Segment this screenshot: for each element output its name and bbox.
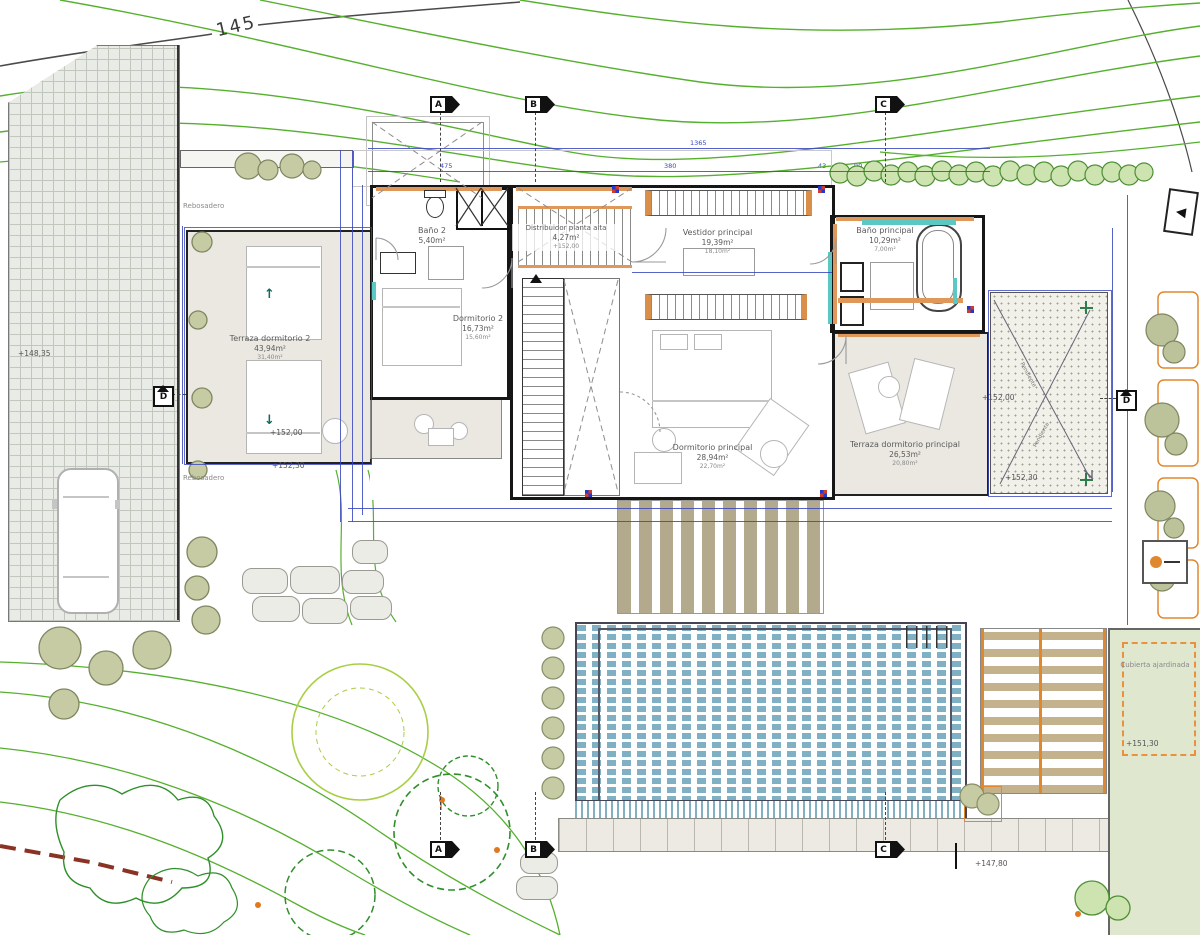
dim-line: [182, 226, 183, 464]
elevator-shaft: [456, 188, 512, 230]
room-area: 19,39m²: [670, 238, 765, 248]
rebosadero-label: Rebosadero: [183, 475, 224, 482]
pergola-beam: [1103, 629, 1106, 793]
wardrobe-north: [645, 190, 812, 216]
toilet-tank: [424, 190, 446, 198]
room-name: Vestidor principal: [670, 228, 765, 238]
dim-line: [348, 508, 1112, 509]
car-mirror-right: [115, 500, 120, 509]
room-label-dormitorio2: Dormitorio 2 16,73m² 15,60m²: [436, 314, 520, 342]
garden-wall: [180, 150, 354, 168]
room-area-util: 22,70m²: [655, 463, 770, 471]
room-label-terraza-principal: Terraza dormitorio principal 26,53m² 20,…: [840, 440, 970, 468]
dim-value: 1365: [690, 140, 707, 147]
elevation-label: +151,30: [1126, 740, 1159, 748]
stone: [302, 598, 348, 624]
room-name: Baño 2: [400, 226, 464, 236]
bed-line: [652, 400, 770, 402]
room-area-util: 31,40m²: [195, 354, 345, 362]
room-area: 4,27m²: [512, 233, 620, 243]
wood-accent: [838, 334, 980, 337]
planter-frame: [964, 786, 1002, 822]
arrow-down-icon: ↓: [264, 414, 275, 427]
car: [57, 468, 119, 614]
section-line-b: [535, 112, 536, 182]
room-area: 5,40m²: [400, 236, 464, 246]
sink: [840, 262, 864, 292]
elevation-label: +152,30: [272, 462, 305, 470]
room-label-bano-principal: Baño principal 10,29m² 7,00m²: [840, 226, 930, 254]
retaining-wall: [558, 818, 1138, 852]
garden-trees: [56, 664, 510, 935]
room-name: Baño principal: [840, 226, 930, 236]
wood-deck: [617, 500, 824, 614]
section-letter: A: [430, 841, 447, 858]
section-marker-a-bottom: A: [430, 841, 460, 858]
elevation-label: +152,00: [982, 394, 1015, 402]
stone: [242, 568, 288, 594]
room-name: Dormitorio 2: [436, 314, 520, 324]
utility-dot: [1150, 556, 1162, 568]
section-marker-c-bottom: C: [875, 841, 905, 858]
pergola: [980, 628, 1107, 794]
car-rear-window: [63, 576, 109, 578]
registry-mark: [585, 490, 592, 497]
pool-ladder: [906, 626, 952, 648]
stone: [342, 570, 384, 594]
pool-basin: [598, 628, 952, 804]
section-line-c: [885, 112, 886, 182]
pool-edge-band: [575, 800, 963, 819]
window-teal: [862, 220, 956, 225]
section-line-d: [1100, 398, 1116, 399]
wood-accent: [838, 298, 963, 303]
section-letter: D: [1123, 396, 1130, 406]
registry-mark: [820, 490, 827, 497]
washbasin: [380, 252, 416, 274]
room-label-bano2: Baño 2 5,40m²: [400, 226, 464, 246]
table: [428, 428, 454, 446]
pergola-beam: [1039, 629, 1042, 793]
section-marker-c-top: C: [875, 96, 905, 113]
room-area-util: 20,80m²: [840, 460, 970, 468]
room-area: 10,29m²: [840, 236, 930, 246]
dim-value: 90: [854, 163, 862, 170]
stone: [290, 566, 340, 594]
room-area: 16,73m²: [436, 324, 520, 334]
room-name: Terraza dormitorio 2: [195, 334, 345, 344]
stone: [252, 596, 300, 622]
pillow: [694, 334, 722, 350]
elevator-divider: [481, 188, 483, 226]
wood-accent: [833, 224, 837, 324]
utility-marker: [1142, 540, 1188, 584]
hedge-row: [830, 161, 1153, 186]
dim-line: [632, 272, 832, 273]
rebosadero-label: Rebosadero: [183, 203, 224, 210]
section-line-d: [172, 394, 186, 395]
section-marker-d-right: D: [1116, 390, 1137, 411]
room-area: 26,53m²: [840, 450, 970, 460]
cubierta-label: Cubierta ajardinada: [1116, 662, 1194, 669]
stone: [350, 596, 392, 620]
wall-tick: [955, 843, 957, 869]
contour-elevation-label: 145: [214, 12, 258, 42]
room-label-dormitorio-principal: Dormitorio principal 28,94m² 22,70m²: [655, 443, 770, 471]
elevation-label: +147,80: [975, 860, 1008, 868]
stone: [352, 540, 388, 564]
section-marker-b-top: B: [525, 96, 555, 113]
room-area-util: 15,60m²: [436, 334, 520, 342]
boundary-line: [0, 846, 172, 882]
driveway-wall: [177, 45, 179, 620]
room-elevation: +152,00: [512, 243, 620, 251]
roof-band: [352, 150, 832, 187]
section-marker-a-top: A: [430, 96, 460, 113]
window-teal: [372, 282, 376, 300]
floor-plan-sheet: ↑ ↓: [0, 0, 1200, 935]
room-label-terraza2: Terraza dormitorio 2 43,94m² 31,40m²: [195, 334, 345, 362]
room-name: Terraza dormitorio principal: [840, 440, 970, 450]
window-teal: [828, 252, 832, 324]
stair-direction-arrow: [530, 268, 542, 283]
section-letter: C: [875, 96, 892, 113]
elevation-label: +148,35: [18, 350, 51, 358]
room-name: Dormitorio principal: [655, 443, 770, 453]
room-label-distribuidor: Distribuidor planta alta 4,27m² +152,00: [512, 224, 620, 251]
room-area: 28,94m²: [655, 453, 770, 463]
section-line-c: [885, 792, 886, 840]
shower: [428, 246, 464, 280]
site-arrow-marker: ◀: [1163, 188, 1199, 236]
section-marker-d-left: D: [153, 386, 174, 407]
window-teal: [953, 278, 957, 304]
registry-mark: [967, 306, 974, 313]
section-line-a: [440, 112, 441, 182]
bed-line: [382, 306, 460, 308]
car-mirror-left: [52, 500, 57, 509]
room-area-util: 18,10m²: [670, 248, 765, 256]
section-letter: D: [160, 392, 167, 402]
stone: [516, 876, 558, 900]
dim-line: [1112, 228, 1113, 492]
wardrobe-south: [645, 294, 807, 320]
elevation-label: +152,30: [1005, 474, 1038, 482]
section-letter: C: [875, 841, 892, 858]
side-table: [878, 376, 900, 398]
pergola-beam: [981, 629, 984, 793]
toilet: [426, 196, 444, 218]
section-letter: B: [525, 96, 542, 113]
room-label-vestidor: Vestidor principal 19,39m² 18,10m²: [670, 228, 765, 256]
section-marker-b-bottom: B: [525, 841, 555, 858]
room-area-util: 7,00m²: [840, 246, 930, 254]
dim-line: [348, 521, 1112, 522]
elevation-label: +152,00: [270, 429, 303, 437]
room-area: 43,94m²: [195, 344, 345, 354]
utility-line: [1164, 561, 1180, 563]
dim-line: [368, 148, 990, 149]
stair-main-run: [522, 278, 564, 496]
section-line-b: [535, 792, 536, 840]
registry-mark: [818, 186, 825, 193]
stair-void: [564, 278, 620, 496]
registry-mark: [612, 186, 619, 193]
section-letter: B: [525, 841, 542, 858]
arrow-up-icon: ↑: [264, 288, 275, 301]
section-letter: A: [430, 96, 447, 113]
pillow: [660, 334, 688, 350]
dim-line: [368, 171, 990, 172]
section-line-a: [440, 792, 441, 840]
room-name: Distribuidor planta alta: [512, 224, 620, 233]
car-windshield: [63, 496, 109, 498]
